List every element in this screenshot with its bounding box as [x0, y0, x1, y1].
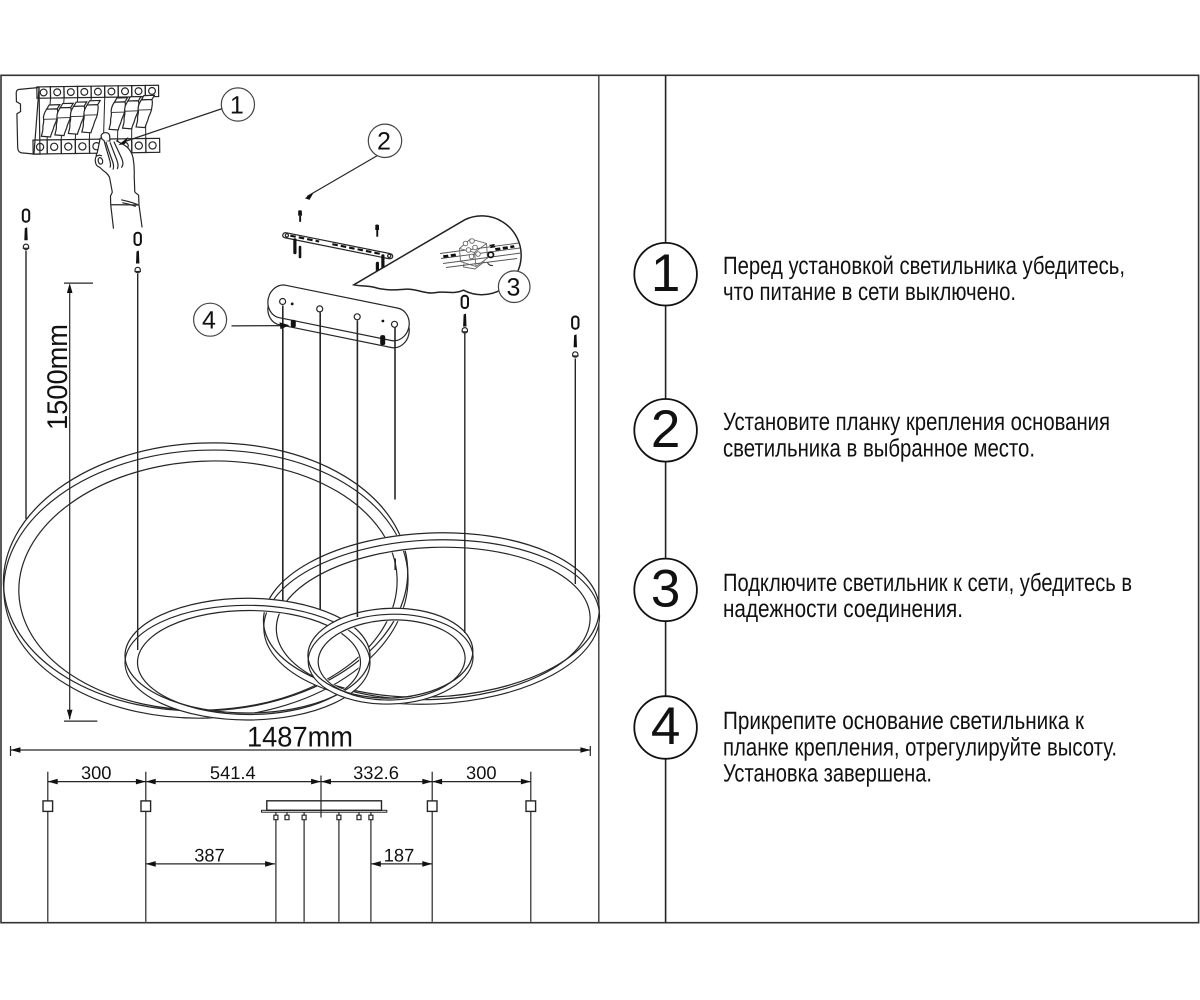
svg-text:2: 2: [651, 400, 680, 459]
svg-text:1: 1: [651, 244, 680, 303]
svg-text:светильника в выбранное место.: светильника в выбранное место.: [723, 434, 1035, 462]
svg-text:300: 300: [81, 762, 112, 783]
svg-text:300: 300: [466, 762, 497, 783]
svg-text:187: 187: [384, 844, 415, 865]
svg-text:387: 387: [194, 844, 225, 865]
svg-text:что питание в сети выключено.: что питание в сети выключено.: [723, 278, 1016, 306]
svg-text:4: 4: [651, 697, 680, 756]
svg-text:Установка завершена.: Установка завершена.: [723, 760, 932, 788]
svg-text:надежности соединения.: надежности соединения.: [723, 595, 963, 623]
svg-text:332.6: 332.6: [353, 762, 399, 783]
svg-text:Перед установкой светильника у: Перед установкой светильника убедитесь,: [723, 252, 1125, 280]
svg-text:1487mm: 1487mm: [247, 722, 353, 754]
svg-text:4: 4: [202, 307, 216, 335]
svg-text:541.4: 541.4: [210, 762, 256, 783]
svg-text:Прикрепите основание светильни: Прикрепите основание светильника к: [723, 707, 1085, 735]
svg-text:Подключите светильник к сети,: Подключите светильник к сети, убедитесь …: [723, 569, 1132, 597]
svg-text:Установите планку крепления ос: Установите планку крепления основания: [723, 408, 1110, 436]
svg-text:1: 1: [230, 91, 244, 119]
svg-text:3: 3: [651, 560, 680, 619]
svg-text:3: 3: [507, 274, 521, 302]
svg-text:1500mm: 1500mm: [42, 324, 74, 430]
svg-text:планке крепления, отрегулируйт: планке крепления, отрегулируйте высоту.: [723, 733, 1117, 761]
svg-text:2: 2: [377, 128, 391, 156]
